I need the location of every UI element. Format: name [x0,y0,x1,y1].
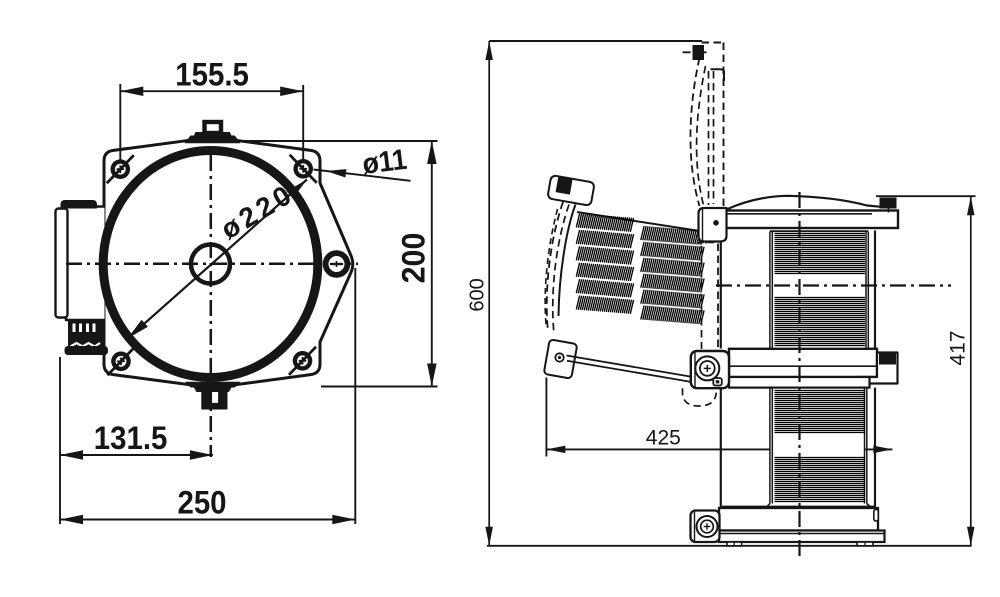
svg-text:417: 417 [947,331,970,366]
svg-text:600: 600 [466,278,488,311]
svg-text:250: 250 [177,484,226,520]
svg-text:ø11: ø11 [361,143,409,180]
svg-text:200: 200 [396,233,432,284]
svg-text:155.5: 155.5 [175,56,249,92]
svg-text:425: 425 [646,427,681,450]
svg-text:131.5: 131.5 [94,420,168,456]
